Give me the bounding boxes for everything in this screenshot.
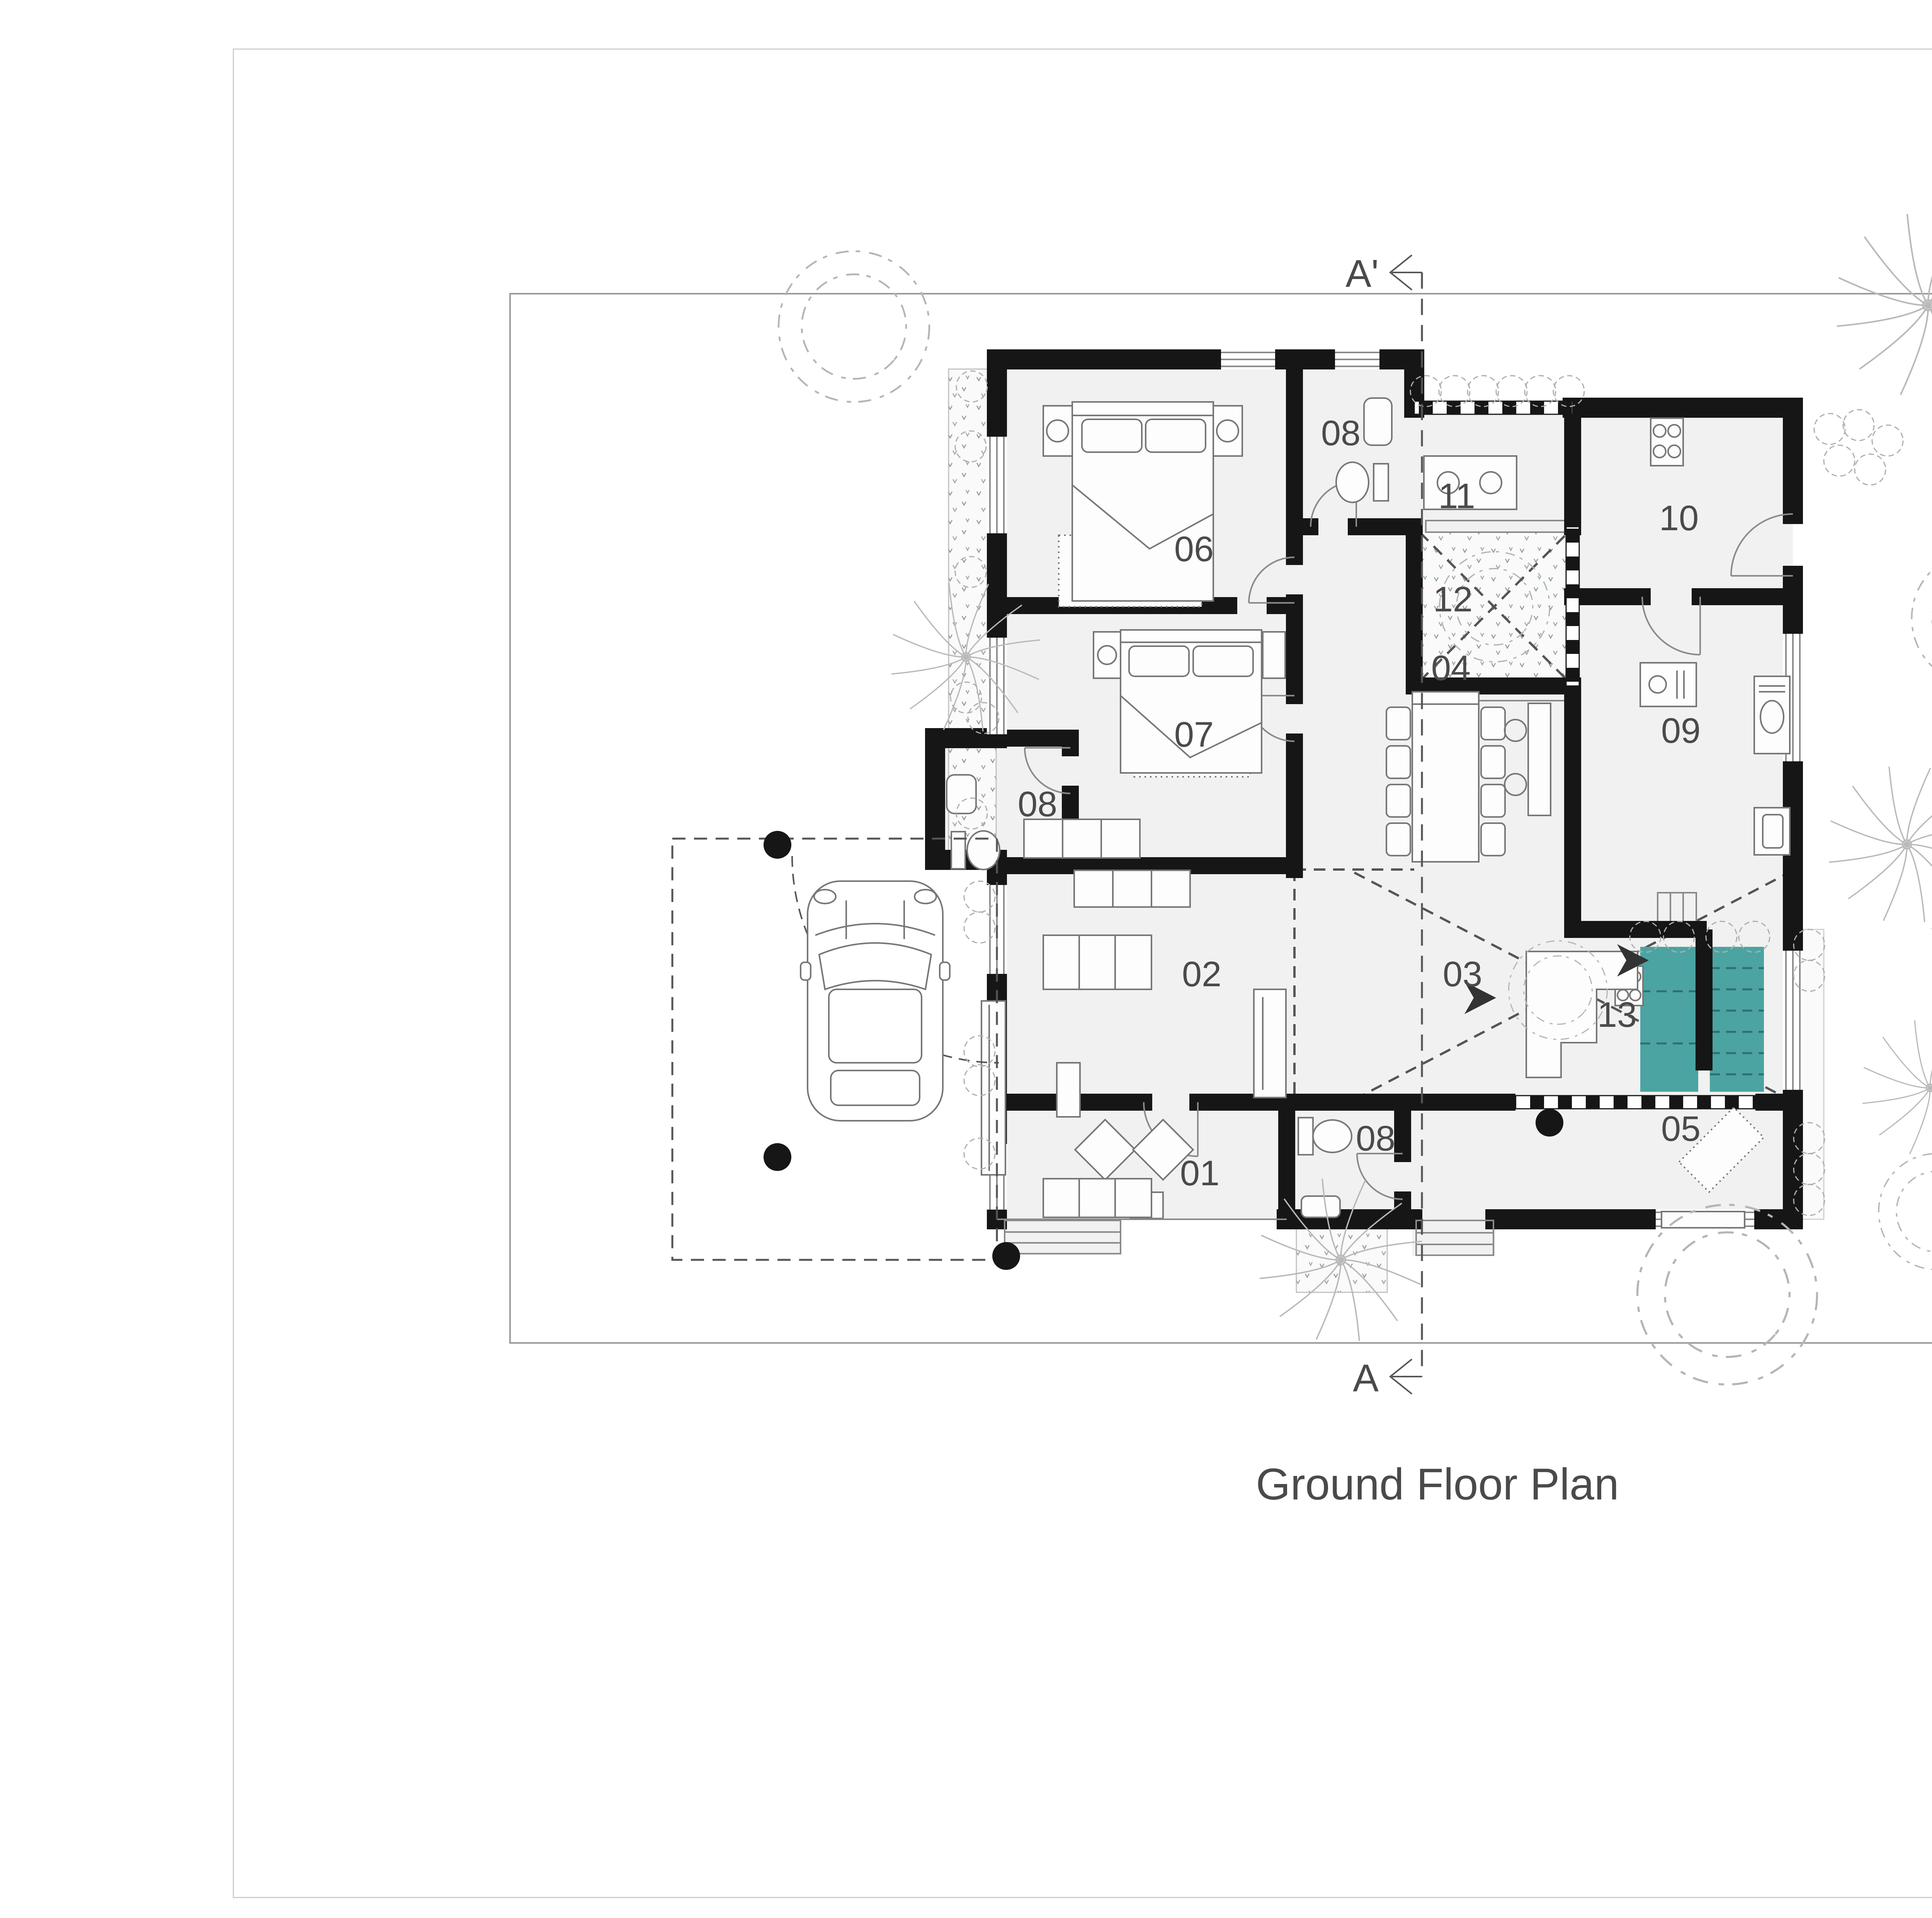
room-label-informal: 03 xyxy=(1443,955,1482,994)
room-label-washroom-bot: 08 xyxy=(1356,1119,1395,1158)
room-label-back-sitout: 11 xyxy=(1438,477,1475,516)
section-marker-top: A' xyxy=(1345,252,1379,295)
car xyxy=(801,881,950,1121)
mbedroom-furniture xyxy=(1043,402,1242,607)
drawing-sheet: A' A 06 08 11 10 12 07 08 04 09 02 03 13… xyxy=(0,0,1932,1918)
section-marker-bottom: A xyxy=(1353,1356,1379,1400)
room-label-workarea: 10 xyxy=(1659,499,1699,538)
room-label-living: 02 xyxy=(1182,955,1221,994)
room-label-prayer: 05 xyxy=(1661,1109,1701,1149)
room-label-study: 13 xyxy=(1597,995,1637,1035)
room-label-washroom-top: 08 xyxy=(1321,414,1361,453)
room-label-kitchen: 09 xyxy=(1661,711,1701,751)
floor-plan-svg: A' A 06 08 11 10 12 07 08 04 09 02 03 13… xyxy=(0,0,1932,1918)
room-label-washroom-mid: 08 xyxy=(1018,785,1057,824)
room-label-mbedroom: 06 xyxy=(1174,529,1214,569)
room-label-courtyard: 12 xyxy=(1433,580,1473,619)
page-title: Ground Floor Plan xyxy=(1256,1460,1619,1509)
window xyxy=(1335,349,1379,369)
window xyxy=(1783,951,1803,1090)
window xyxy=(987,437,1007,533)
room-label-sitout: 01 xyxy=(1180,1154,1219,1193)
window xyxy=(1221,349,1275,369)
carport xyxy=(672,839,999,1260)
room-label-bedroom: 07 xyxy=(1174,715,1214,754)
room-label-dining: 04 xyxy=(1431,648,1471,688)
